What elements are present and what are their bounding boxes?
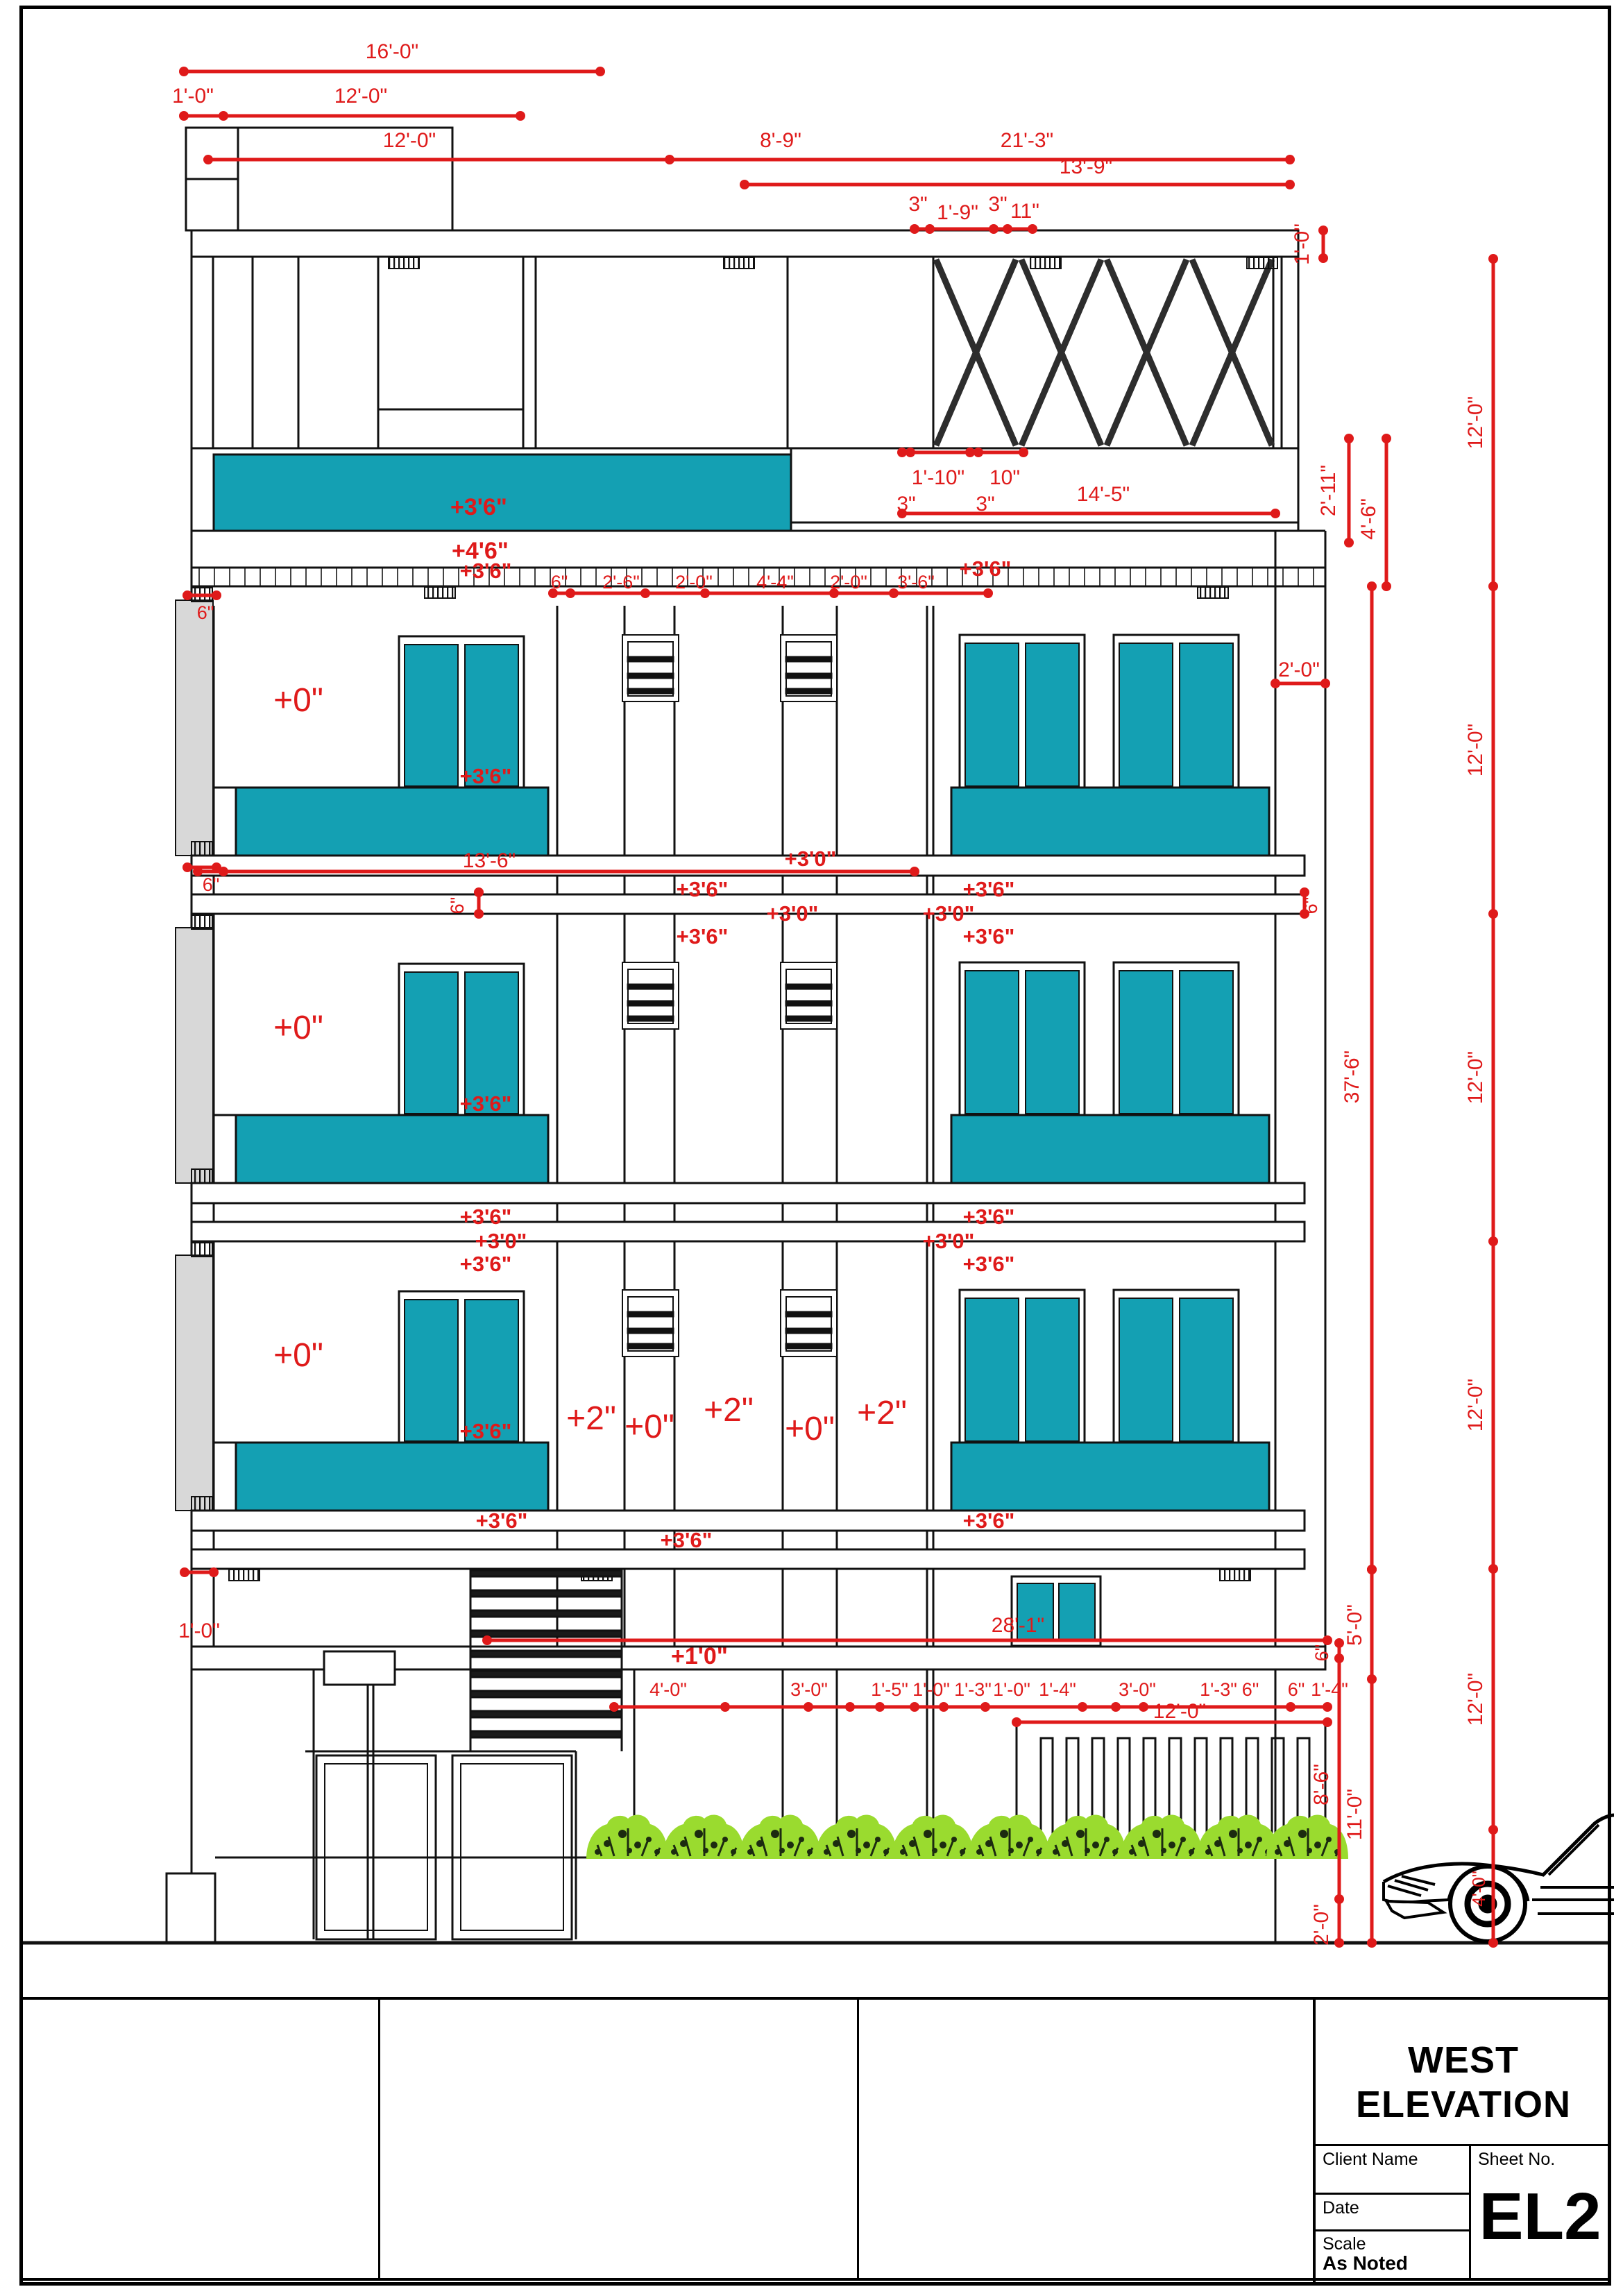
west-elevation-drawing: 16'-0"1'-0"12'-0"12'-0"8'-9"21'-3"13'-9"… [0, 0, 1623, 2296]
dim-label: +3'6" [960, 556, 1012, 581]
dim-label: 6" [1300, 897, 1321, 915]
entry-canopy [324, 1651, 395, 1685]
dim-label: +3'6" [460, 559, 512, 583]
dim-label: +3'6" [460, 1252, 512, 1276]
floor-slab [192, 1222, 1305, 1241]
car-sketch [1384, 1815, 1614, 1941]
dim-label: 2'-0" [1278, 658, 1320, 681]
dim-label: +3'6" [476, 1508, 528, 1533]
dim-label: 3'-0" [790, 1679, 828, 1700]
drawing-title-line2: ELEVATION [1316, 2083, 1611, 2127]
dim-label: 6" [1311, 1644, 1332, 1662]
dim-label: +0" [273, 1010, 323, 1046]
dim-label: +3'0" [767, 901, 819, 926]
dim-label: +0" [273, 1337, 323, 1374]
dim-label: 3'-0" [1119, 1679, 1156, 1700]
dim-label: 8'-9" [760, 129, 801, 152]
dim-label: 1'-4" [1039, 1679, 1076, 1700]
dim-label: +3'0" [923, 1229, 975, 1253]
entry-door-panel [452, 1755, 572, 1939]
dim-label: 12'-0" [1464, 1379, 1487, 1431]
entry-door-panel [316, 1755, 436, 1939]
dim-label: 5'-0" [1343, 1604, 1366, 1646]
dim-label: 6" [1242, 1679, 1259, 1700]
dim-label: +3'6" [963, 1205, 1015, 1229]
dim-label: 13'-9" [1060, 155, 1112, 178]
side-pilaster [176, 928, 213, 1183]
dim-label: 12'-0" [1464, 1051, 1487, 1104]
dim-label: 4'-4" [756, 572, 794, 593]
scale-label: Scale [1323, 2234, 1366, 2254]
titleblock-divider [22, 2278, 1611, 2281]
dim-label: 1'-0" [172, 85, 214, 108]
dim-label: +3'0" [785, 847, 837, 871]
dim-label: +2" [857, 1395, 907, 1431]
dim-label: 2'-0" [1310, 1904, 1333, 1946]
dim-label: 6" [551, 572, 568, 593]
sheet-number: EL2 [1469, 2179, 1611, 2255]
dim-label: 12'-0" [383, 129, 436, 152]
scale-value: As Noted [1323, 2252, 1408, 2274]
drawing-title: WEST ELEVATION [1316, 2039, 1611, 2127]
dim-label: 2'-0" [830, 572, 867, 593]
dim-label: 3" [988, 193, 1007, 216]
dim-label: 1'-0" [993, 1679, 1030, 1700]
dim-label: 1'-10" [912, 466, 965, 489]
dim-label: 11" [1010, 200, 1039, 223]
dim-label: 6" [203, 874, 220, 895]
dim-label: 21'-3" [1001, 129, 1053, 152]
drawing-title-line1: WEST [1316, 2039, 1611, 2083]
dim-label: 12'-0" [1464, 396, 1487, 449]
dim-label: 12'-0" [1464, 724, 1487, 776]
client-name-label: Client Name [1323, 2150, 1418, 2170]
titleblock-divider [1313, 2193, 1469, 2195]
dim-label: +0" [624, 1409, 674, 1445]
dim-label: +0" [785, 1411, 835, 1447]
dim-label: +3'0" [475, 1229, 527, 1253]
dim-label: 14'-5" [1077, 483, 1130, 506]
drawing-sheet: 16'-0"1'-0"12'-0"12'-0"8'-9"21'-3"13'-9"… [0, 0, 1623, 2296]
dim-label: 2'-6" [602, 572, 640, 593]
titleblock-divider [378, 1997, 380, 2278]
dim-label: 6" [447, 897, 468, 915]
x-brace-screen [936, 260, 1272, 445]
dim-label: 1'-9" [937, 201, 978, 224]
titleblock-divider [22, 1997, 1611, 2000]
dim-label: 12'-0" [1153, 1700, 1206, 1723]
dim-label: +2" [566, 1400, 616, 1437]
floor-slab [192, 1183, 1305, 1203]
dim-label: 37'-6" [1341, 1051, 1363, 1103]
side-pilaster [176, 600, 213, 856]
titleblock-divider [1313, 2229, 1469, 2231]
plants-row [586, 1814, 1348, 1859]
dim-label: 2'-11" [1317, 465, 1340, 516]
dim-label: 6" [1288, 1679, 1305, 1700]
date-label: Date [1323, 2198, 1359, 2218]
floor-slab [192, 1549, 1305, 1569]
dim-label: 16'-0" [366, 40, 418, 63]
dim-label: +1'0" [671, 1643, 728, 1669]
dim-label: +3'6" [963, 877, 1015, 901]
dim-label: +3'6" [460, 1205, 512, 1229]
dim-label: +3'6" [677, 877, 729, 901]
dim-label: 1'-0" [1291, 223, 1314, 265]
dim-label: +3'6" [661, 1528, 713, 1552]
roof-slab [192, 230, 1298, 257]
balcony-parapet [236, 788, 548, 856]
titleblock-divider [857, 1997, 859, 2278]
stair-treads [470, 1570, 622, 1737]
balcony-parapet [951, 1115, 1269, 1183]
dim-label: +3'6" [460, 1091, 512, 1116]
dim-label: 2'-0" [675, 572, 713, 593]
balcony-parapet [951, 788, 1269, 856]
dim-label: 1'-0" [178, 1619, 220, 1642]
sheet-no-label: Sheet No. [1478, 2150, 1555, 2170]
dim-label: +3'6" [460, 1419, 512, 1443]
dim-label: 3'-6" [897, 572, 935, 593]
balcony-parapet [236, 1443, 548, 1511]
floor-slab [192, 1511, 1305, 1531]
balcony-parapet [951, 1443, 1269, 1511]
dim-label: +0" [273, 682, 323, 719]
dim-label: +3'6" [963, 1252, 1015, 1276]
dim-label: +3'6" [963, 1508, 1015, 1533]
dim-label: 1'-0" [912, 1679, 950, 1700]
dim-label: 4'-0" [1468, 1871, 1489, 1907]
dim-label: 12'-0" [1464, 1673, 1487, 1726]
dim-label: 1'-3" [954, 1679, 992, 1700]
dim-label: +2" [704, 1392, 754, 1429]
floor-slab [192, 894, 1305, 914]
titleblock-divider [1313, 2144, 1611, 2146]
dim-label: +3'6" [677, 924, 729, 949]
dim-label: 10" [989, 466, 1020, 489]
dim-label: +3'0" [923, 901, 975, 926]
dim-label: 6" [197, 602, 214, 623]
dim-label: 28'-1" [992, 1614, 1044, 1637]
dim-label: 8'-6" [1310, 1764, 1333, 1805]
dim-label: 1'-5" [871, 1679, 908, 1700]
dim-label: 3" [976, 493, 994, 516]
plinth-step [167, 1873, 215, 1943]
balcony-parapet [236, 1115, 548, 1183]
dim-label: 12'-0" [334, 85, 387, 108]
dim-label: 3" [908, 193, 927, 216]
dim-label: +3'6" [460, 764, 512, 788]
dim-label: 3" [897, 493, 915, 516]
side-pilaster [176, 1255, 213, 1511]
dim-label: 11'-0" [1343, 1789, 1366, 1840]
dim-label: 13'-6" [463, 849, 516, 872]
dim-label: 4'-0" [649, 1679, 687, 1700]
dim-label: 1'-3" [1200, 1679, 1237, 1700]
dim-label: +3'6" [450, 494, 507, 520]
dim-label: 1'-4" [1311, 1679, 1348, 1700]
dim-label: +3'6" [963, 924, 1015, 949]
dim-label: 4'-6" [1357, 498, 1380, 540]
